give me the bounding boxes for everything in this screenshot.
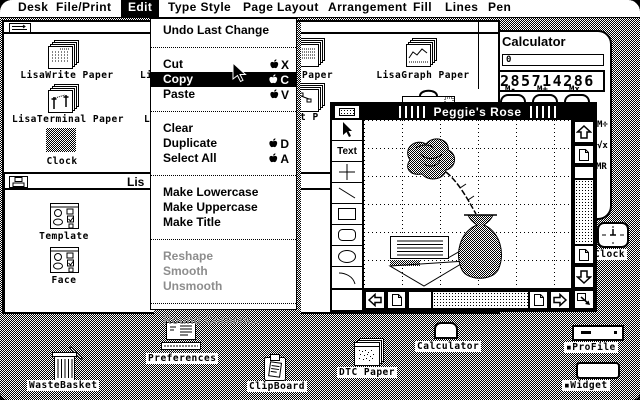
- menu-item-round-corners: Round Corners...: [151, 313, 296, 328]
- window-b-title-fragment: Lis: [127, 175, 144, 189]
- paper-stack-icon: [46, 84, 82, 114]
- resize-corner-icon: [576, 292, 592, 307]
- tool-crosshair[interactable]: [332, 162, 362, 183]
- menu-item-clear[interactable]: Clear: [151, 121, 296, 136]
- tool-rectangle[interactable]: [332, 204, 362, 225]
- draw-window-titlebar[interactable]: Peggie's Rose: [332, 104, 595, 120]
- shortcut-letter: V: [281, 88, 289, 102]
- tool-rounded-rectangle[interactable]: [332, 225, 362, 246]
- ellipse-tool-icon: [337, 249, 357, 264]
- menu-file-print[interactable]: File/Print: [56, 0, 111, 18]
- hscroll-status-area: [332, 290, 364, 310]
- menu-edit[interactable]: Edit: [121, 0, 159, 18]
- calculator-memory-display: 0: [502, 54, 604, 66]
- menu-item-cut[interactable]: CutX: [151, 57, 296, 72]
- page-down-button[interactable]: [573, 244, 595, 265]
- menu-separator: [151, 47, 296, 48]
- icon-label: Clock: [42, 156, 82, 167]
- menu-item-unsmooth: Unsmooth: [151, 279, 296, 294]
- menu-item-label: Smooth: [163, 264, 208, 278]
- sqrt-button[interactable]: √x: [597, 141, 608, 151]
- menu-type-style[interactable]: Type Style: [168, 0, 231, 18]
- icon-label-fragment: Paper: [300, 70, 335, 81]
- mouse-cursor-icon: [232, 62, 248, 89]
- lisadraw-doc-icon: [50, 247, 79, 273]
- apple-key-icon: [269, 59, 279, 70]
- tool-arc[interactable]: [332, 267, 362, 288]
- menu-item-smooth: Smooth: [151, 264, 296, 279]
- menu-item-label: Undo Last Change: [163, 23, 269, 37]
- paper-stack-icon: [46, 40, 82, 70]
- memory-recall-button[interactable]: MR: [596, 162, 607, 172]
- scroll-right-button[interactable]: [549, 290, 571, 310]
- menu-item-make-title[interactable]: Make Title: [151, 215, 296, 230]
- menu-separator: [151, 239, 296, 240]
- crosshair-icon: [338, 163, 356, 181]
- menu-item-label: Paste: [163, 87, 195, 101]
- widget-disk-icon[interactable]: [576, 362, 620, 379]
- shortcut-letter: X: [281, 58, 289, 72]
- rounded-rect-tool-icon: [337, 228, 357, 242]
- menu-item-label: Make Lowercase: [163, 185, 258, 199]
- menu-arrangement[interactable]: Arrangement: [328, 0, 407, 18]
- tool-ellipse[interactable]: [332, 246, 362, 267]
- draw-window: Peggie's Rose Text: [330, 102, 597, 312]
- hscroll-thumb[interactable]: [407, 290, 433, 310]
- profile-label: ▪ProFile: [564, 342, 618, 353]
- icon-label: LisaTerminal Paper: [4, 114, 132, 125]
- tool-palette: Text: [332, 120, 364, 288]
- clock-icon-label: Clock: [592, 249, 627, 260]
- window-a-divider: [478, 22, 479, 89]
- menu-item-reshape: Reshape: [151, 249, 296, 264]
- m-divide-button[interactable]: M÷: [597, 120, 608, 130]
- menu-item-label: Make Title: [163, 215, 221, 229]
- icon-label: Template: [33, 231, 95, 242]
- shortcut-letter: C: [280, 73, 289, 87]
- text-tool-label: Text: [337, 146, 357, 157]
- rectangle-tool-icon: [337, 207, 357, 221]
- clock-face-icon: [597, 222, 629, 248]
- shortcut: A: [268, 151, 289, 166]
- profile-drive-icon: [572, 325, 624, 341]
- icon-label: LisaGraph Paper: [372, 70, 474, 81]
- menu-pen[interactable]: Pen: [488, 0, 511, 18]
- clipboard-glyph-icon: [262, 354, 288, 382]
- menu-bar: Desk File/Print Edit Type Style Page Lay…: [0, 0, 640, 18]
- menu-item-copy[interactable]: CopyC: [151, 72, 296, 87]
- menu-item-duplicate[interactable]: DuplicateD: [151, 136, 296, 151]
- widget-label: ▪Widget: [562, 380, 610, 391]
- drawing-canvas[interactable]: [364, 120, 571, 288]
- resize-corner[interactable]: [573, 289, 595, 310]
- icon-clock-open[interactable]: [46, 128, 76, 152]
- page-icon: [390, 293, 404, 307]
- menu-item-label: Round Corners...: [163, 313, 260, 327]
- shortcut-letter: D: [280, 137, 289, 151]
- menu-item-make-uppercase[interactable]: Make Uppercase: [151, 200, 296, 215]
- menu-desk[interactable]: Desk: [18, 0, 48, 18]
- window-menu-icon[interactable]: [334, 105, 360, 119]
- page-up-button[interactable]: [573, 144, 595, 165]
- vscroll-track[interactable]: [573, 180, 595, 244]
- apple-key-icon: [268, 138, 278, 149]
- menu-item-label: Reshape: [163, 249, 213, 263]
- menu-item-paste[interactable]: PasteV: [151, 87, 296, 102]
- page-icon: [577, 248, 591, 262]
- hscroll-track[interactable]: [433, 290, 528, 310]
- titlebar-stripes: [530, 106, 556, 118]
- page-icon: [577, 148, 591, 162]
- icon-lisagraph-paper[interactable]: [404, 38, 440, 73]
- line-tool-icon: [337, 186, 357, 200]
- paper-stack-graph-icon: [404, 38, 440, 68]
- wastebasket-label: WasteBasket: [27, 380, 99, 391]
- icon-face[interactable]: [50, 247, 79, 278]
- clipboard-label: ClipBoard: [247, 381, 307, 392]
- menu-item-label: Clear: [163, 121, 193, 135]
- menu-item-label: Select All: [163, 151, 217, 165]
- shortcut: V: [269, 87, 289, 102]
- mini-window-glyph-icon: [339, 108, 355, 116]
- shortcut-letter: A: [280, 152, 289, 166]
- disk-icon: [9, 176, 28, 188]
- horizontal-scrollbar: [332, 288, 571, 310]
- right-arrow-icon: [552, 293, 568, 307]
- tool-line[interactable]: [332, 183, 362, 204]
- arrow-tool-icon: [341, 122, 353, 138]
- icon-template[interactable]: [50, 203, 79, 234]
- menu-page-layout[interactable]: Page Layout: [243, 0, 319, 18]
- calculator-title[interactable]: Calculator: [502, 34, 566, 49]
- menu-separator: [151, 111, 296, 112]
- vertical-scrollbar: [571, 120, 595, 310]
- apple-key-icon: [268, 153, 278, 164]
- calculator-desktop-icon[interactable]: [434, 322, 458, 339]
- scroll-down-button[interactable]: [573, 265, 595, 289]
- icon-label: LisaWrite Paper: [12, 70, 122, 81]
- lisa-desktop: Calculator 0 285714286 M- M+ Mx M÷ √x MR…: [0, 0, 640, 400]
- menu-separator: [151, 175, 296, 176]
- page-right-button[interactable]: [528, 290, 549, 310]
- trash-can-icon: [50, 346, 84, 382]
- paper-stack-icon: [352, 338, 386, 368]
- shortcut: C: [268, 72, 289, 87]
- shortcut: X: [269, 57, 289, 72]
- tool-text[interactable]: Text: [332, 141, 362, 162]
- edit-menu: Undo Last Change CutX CopyC PasteV Clear…: [150, 18, 297, 310]
- scroll-up-button[interactable]: [573, 120, 595, 144]
- menu-lines[interactable]: Lines: [445, 0, 478, 18]
- draw-window-title: Peggie's Rose: [425, 105, 529, 119]
- menu-item-make-lowercase[interactable]: Make Lowercase: [151, 185, 296, 200]
- dtc-paper-label: DTC Paper: [337, 367, 397, 378]
- menu-item-label: Duplicate: [163, 136, 217, 150]
- calculator-icon-label: Calculator: [415, 341, 481, 352]
- tool-selection-arrow[interactable]: [332, 120, 362, 141]
- menu-fill[interactable]: Fill: [413, 0, 432, 18]
- vscroll-thumb[interactable]: [573, 165, 595, 180]
- lisadraw-doc-icon: [50, 203, 79, 229]
- down-arrow-icon: [576, 269, 592, 285]
- page-icon: [532, 293, 546, 307]
- menu-item-label: Cut: [163, 57, 183, 71]
- menu-separator: [151, 303, 296, 304]
- menu-item-undo-last-change[interactable]: Undo Last Change: [151, 23, 296, 38]
- apple-key-icon: [268, 74, 278, 85]
- window-menu-icon: [9, 23, 31, 33]
- up-arrow-icon: [576, 124, 592, 140]
- menu-item-select-all[interactable]: Select AllA: [151, 151, 296, 166]
- menu-item-label: Unsmooth: [163, 279, 222, 293]
- shortcut: D: [268, 136, 289, 151]
- apple-key-icon: [269, 89, 279, 100]
- preferences-label: Preferences: [146, 353, 218, 364]
- titlebar-stripes: [399, 106, 425, 118]
- icon-label-fragment: t P: [298, 112, 321, 123]
- arc-tool-icon: [337, 271, 357, 285]
- menu-item-label: Copy: [163, 72, 193, 86]
- left-arrow-icon: [367, 293, 383, 307]
- scroll-left-button[interactable]: [364, 290, 386, 310]
- page-left-button[interactable]: [386, 290, 407, 310]
- icon-label: Face: [43, 275, 85, 286]
- menu-item-label: Make Uppercase: [163, 200, 258, 214]
- rose-drawing: [364, 120, 571, 288]
